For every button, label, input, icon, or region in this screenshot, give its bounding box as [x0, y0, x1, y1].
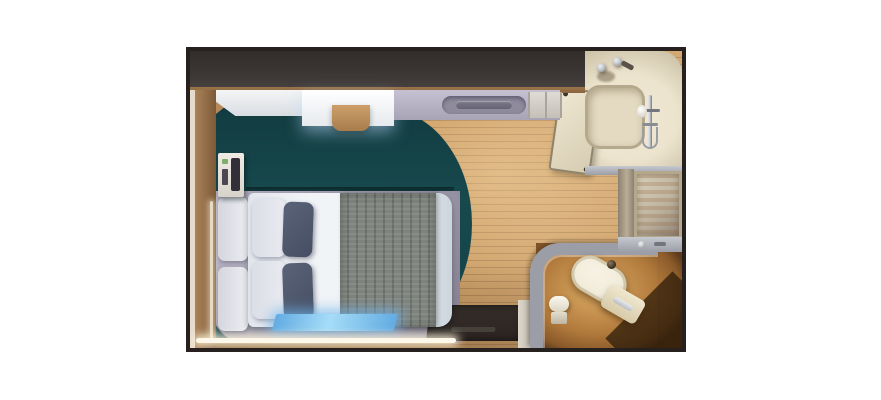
shower-tray [585, 85, 645, 149]
toilet-paper-roll [549, 296, 569, 312]
headboard-cushion [218, 267, 248, 331]
toilet-paper-holder [551, 312, 567, 324]
entrance-threshold [451, 327, 496, 332]
sink-basin [597, 71, 615, 82]
cabinet-handle [456, 101, 512, 109]
shower-hose [642, 127, 658, 149]
cabinet-recess [442, 96, 526, 114]
faucet-spout-icon [621, 60, 635, 71]
cabin-floorplan [186, 47, 686, 352]
shower-knob [637, 105, 647, 118]
faucet-handle-icon [597, 63, 606, 72]
desk-stool [332, 105, 370, 131]
pillow-white [252, 199, 286, 257]
led-strip-bottom [196, 338, 456, 343]
wall-phone-panel [218, 153, 244, 197]
panel-buttons [222, 169, 228, 185]
cabinet-panels [528, 92, 562, 118]
pillow-dark [282, 262, 314, 319]
flush-knob [607, 260, 616, 269]
floorplan-canvas [0, 0, 881, 400]
panel-led-indicator [222, 159, 228, 164]
counter-faucet-icon [638, 241, 645, 248]
headboard-cushion [218, 197, 248, 261]
phone-handset-icon [231, 158, 240, 191]
panel-divider-line [545, 92, 547, 118]
mirror-cabinet [634, 171, 682, 239]
foot-bench-lit [272, 314, 399, 331]
counter-spout-icon [654, 242, 666, 246]
bed-throw-runner [340, 193, 436, 327]
led-strip-left [210, 201, 213, 339]
pillow-white [252, 261, 286, 319]
vanity-counter [618, 237, 682, 252]
cabin-room [190, 51, 682, 348]
top-wall [190, 51, 585, 90]
shower-arm [642, 123, 658, 126]
pillow-dark [282, 201, 314, 257]
headboard [218, 197, 250, 333]
flush-plate [612, 296, 634, 312]
